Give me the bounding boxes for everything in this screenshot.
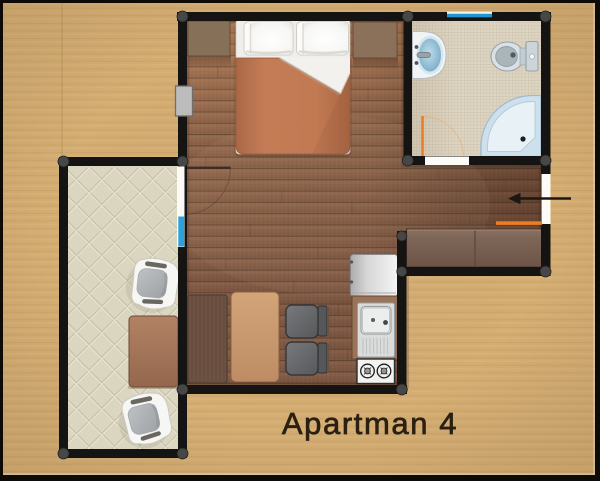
svg-text:Apartman 4: Apartman 4 bbox=[282, 406, 458, 441]
